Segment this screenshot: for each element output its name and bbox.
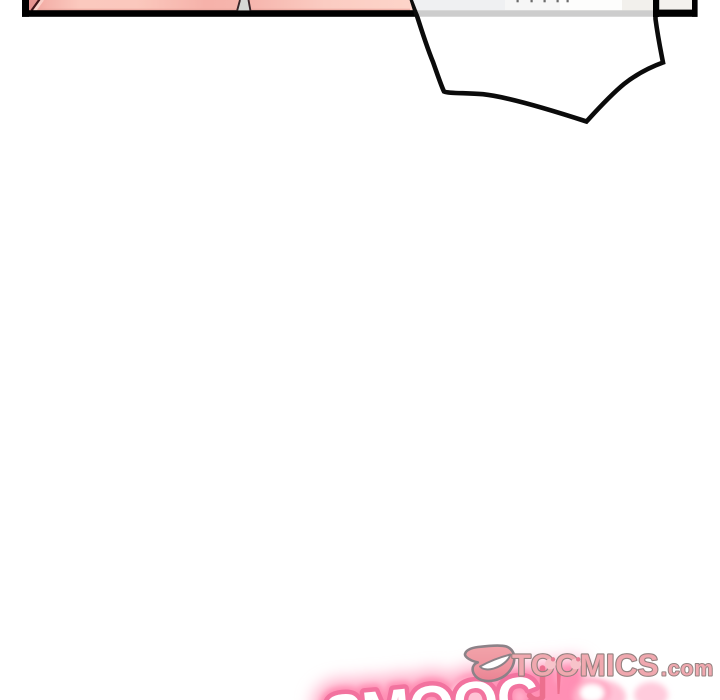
svg-text:TOOMICS: TOOMICS [512,648,659,683]
svg-text:.com: .com [661,658,714,681]
